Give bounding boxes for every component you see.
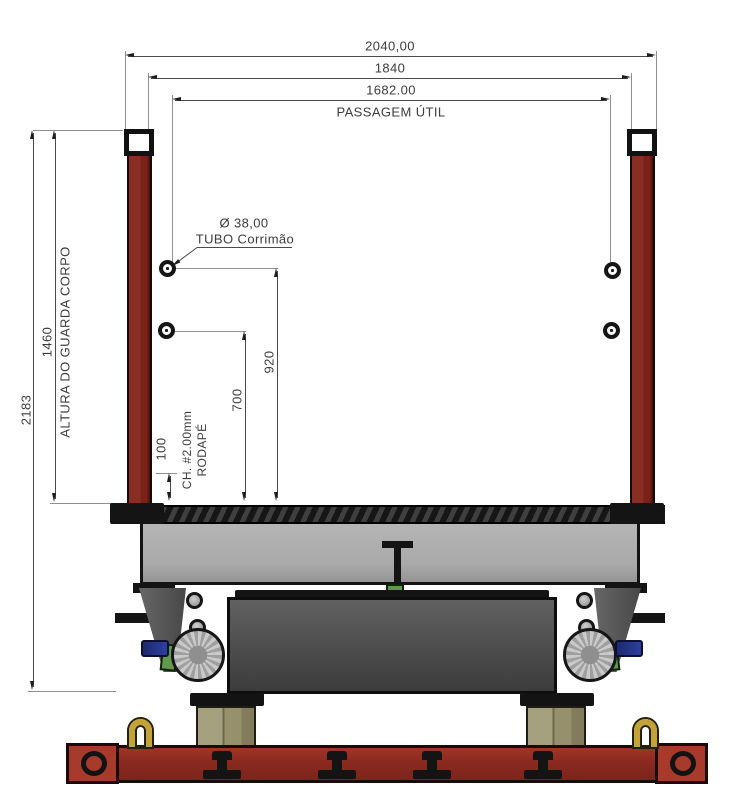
ext-line: [50, 503, 114, 504]
dim-arrow: [622, 75, 631, 79]
dim-label-guard-height: 1460: [40, 327, 55, 358]
post-footplate-right: [610, 503, 664, 524]
post-cap-right: [627, 129, 657, 156]
technical-drawing-canvas: 2040,00 1840 1682.00 PASSAGEM ÚTIL 2183 …: [0, 0, 753, 800]
dim-arrow: [274, 268, 278, 277]
post-cap-left: [124, 129, 154, 156]
rail-foot: [524, 770, 562, 779]
passage-caption: PASSAGEM ÚTIL: [337, 105, 446, 120]
dim-line-920: [277, 271, 278, 498]
axle-bolt-right: [615, 640, 643, 657]
axle-bolt-left: [141, 640, 169, 657]
dim-arrow: [52, 130, 56, 139]
t-stiffener-web: [394, 548, 401, 588]
rail-foot: [318, 770, 356, 779]
rail-profile: [524, 751, 562, 783]
dim-arrow: [647, 53, 656, 57]
tube-diameter-label: Ø 38,00: [219, 216, 268, 231]
lifting-shackle-right: [634, 719, 657, 747]
ext-line: [148, 73, 149, 129]
dim-line-1460: [55, 133, 56, 499]
pedestal-right: [526, 706, 586, 750]
dim-arrow: [30, 681, 34, 690]
toeboard-caption-line2: RODAPÉ: [195, 423, 209, 476]
ext-line: [610, 95, 611, 262]
platform-beam: [140, 521, 640, 585]
lifting-shackle-left: [129, 719, 152, 747]
central-box: [227, 597, 557, 694]
dim-line-700: [245, 334, 246, 498]
dim-arrow: [242, 492, 246, 501]
rail-profile: [413, 751, 451, 783]
lifting-hole-right: [670, 751, 696, 776]
handrail-tube-hole: [603, 322, 620, 339]
dim-arrow: [601, 97, 610, 101]
dim-arrow: [125, 53, 134, 57]
dim-line-1682: [175, 100, 607, 101]
tube-caption: TUBO Corrimão: [196, 232, 294, 247]
dim-arrow: [167, 473, 171, 482]
rail-foot: [203, 770, 241, 779]
dim-arrow: [167, 492, 171, 501]
dim-arrow: [242, 331, 246, 340]
dim-line-1840: [151, 78, 628, 79]
rail-foot: [413, 770, 451, 779]
rail-profile: [318, 751, 356, 783]
pedestal-cap-left: [190, 693, 264, 706]
ext-line: [656, 51, 657, 129]
ext-line: [631, 73, 632, 129]
dim-label-total-height: 2183: [19, 395, 34, 426]
dim-label-passage-width: 1682.00: [366, 83, 416, 98]
guard-post-left: [127, 150, 152, 515]
dim-arrow: [172, 97, 181, 101]
guide-roller: [576, 592, 593, 609]
dim-label-toeboard: 100: [154, 438, 169, 461]
dim-arrow: [274, 492, 278, 501]
rail-profile: [203, 751, 241, 783]
pedestal-left: [196, 706, 256, 750]
ext-line: [175, 268, 278, 269]
dim-arrow: [52, 493, 56, 502]
ext-line: [28, 691, 116, 692]
ext-line: [172, 95, 173, 262]
t-stiffener-flange: [382, 541, 413, 548]
ext-line: [173, 331, 246, 332]
post-footplate-left: [110, 503, 164, 524]
toeboard-caption-line1: CH. #2.00mm: [180, 411, 194, 489]
dim-label-handrail-upper: 920: [262, 351, 277, 374]
wheel-right: [563, 628, 617, 682]
dim-label-overall-width: 2040,00: [365, 39, 415, 54]
guide-roller: [186, 592, 203, 609]
dim-arrow: [30, 130, 34, 139]
ext-line: [33, 130, 123, 131]
guard-caption: ALTURA DO GUARDA CORPO: [58, 246, 73, 437]
guard-post-right: [630, 150, 655, 515]
dim-label-frame-width: 1840: [375, 61, 406, 76]
handrail-tube-hole: [604, 262, 621, 279]
lifting-hole-left: [81, 751, 107, 776]
ext-line: [125, 51, 126, 129]
pedestal-cap-right: [520, 693, 594, 706]
dim-arrow: [148, 75, 157, 79]
leader-underline: [197, 247, 292, 248]
handrail-tube-hole: [158, 322, 175, 339]
dim-line-2040: [128, 56, 653, 57]
dim-label-handrail-lower: 700: [230, 389, 245, 412]
floor-checker-plate: [113, 505, 665, 524]
wheel-left: [171, 628, 225, 682]
base-beam: [70, 745, 704, 783]
